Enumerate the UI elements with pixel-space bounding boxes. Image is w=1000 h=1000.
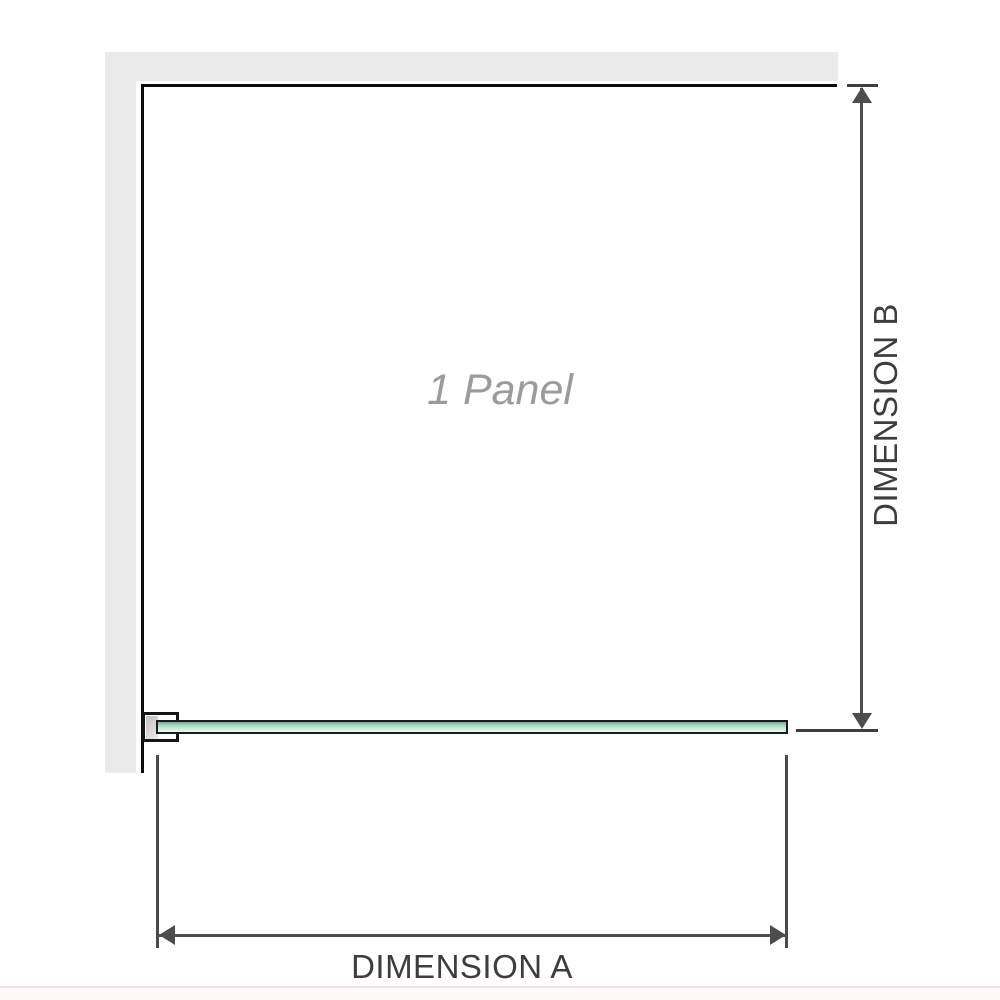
dimension-a-line [158, 934, 787, 937]
dimension-b-label: DIMENSION B [866, 275, 906, 555]
dimension-a-right-extension-line [785, 755, 788, 948]
wall-top-band [105, 52, 838, 81]
glass-panel-bar [156, 720, 788, 734]
dimension-a-label: DIMENSION A [262, 948, 662, 986]
panel-left-edge-line [141, 84, 144, 773]
arrow-down-icon [852, 713, 872, 729]
shower-panel-diagram: 1 Panel DIMENSION B DIMENSION A [0, 0, 1000, 1000]
panel-top-edge-line [141, 84, 837, 87]
dimension-b-bottom-tick [796, 729, 878, 732]
panel-count-label: 1 Panel [390, 366, 610, 415]
bottom-background-strip [0, 988, 1000, 1000]
dimension-b-line [860, 88, 863, 718]
arrow-up-icon [852, 87, 872, 103]
dimension-a-left-extension-line [156, 755, 159, 948]
arrow-left-icon [159, 925, 175, 945]
wall-left-band [105, 52, 136, 773]
arrow-right-icon [770, 925, 786, 945]
